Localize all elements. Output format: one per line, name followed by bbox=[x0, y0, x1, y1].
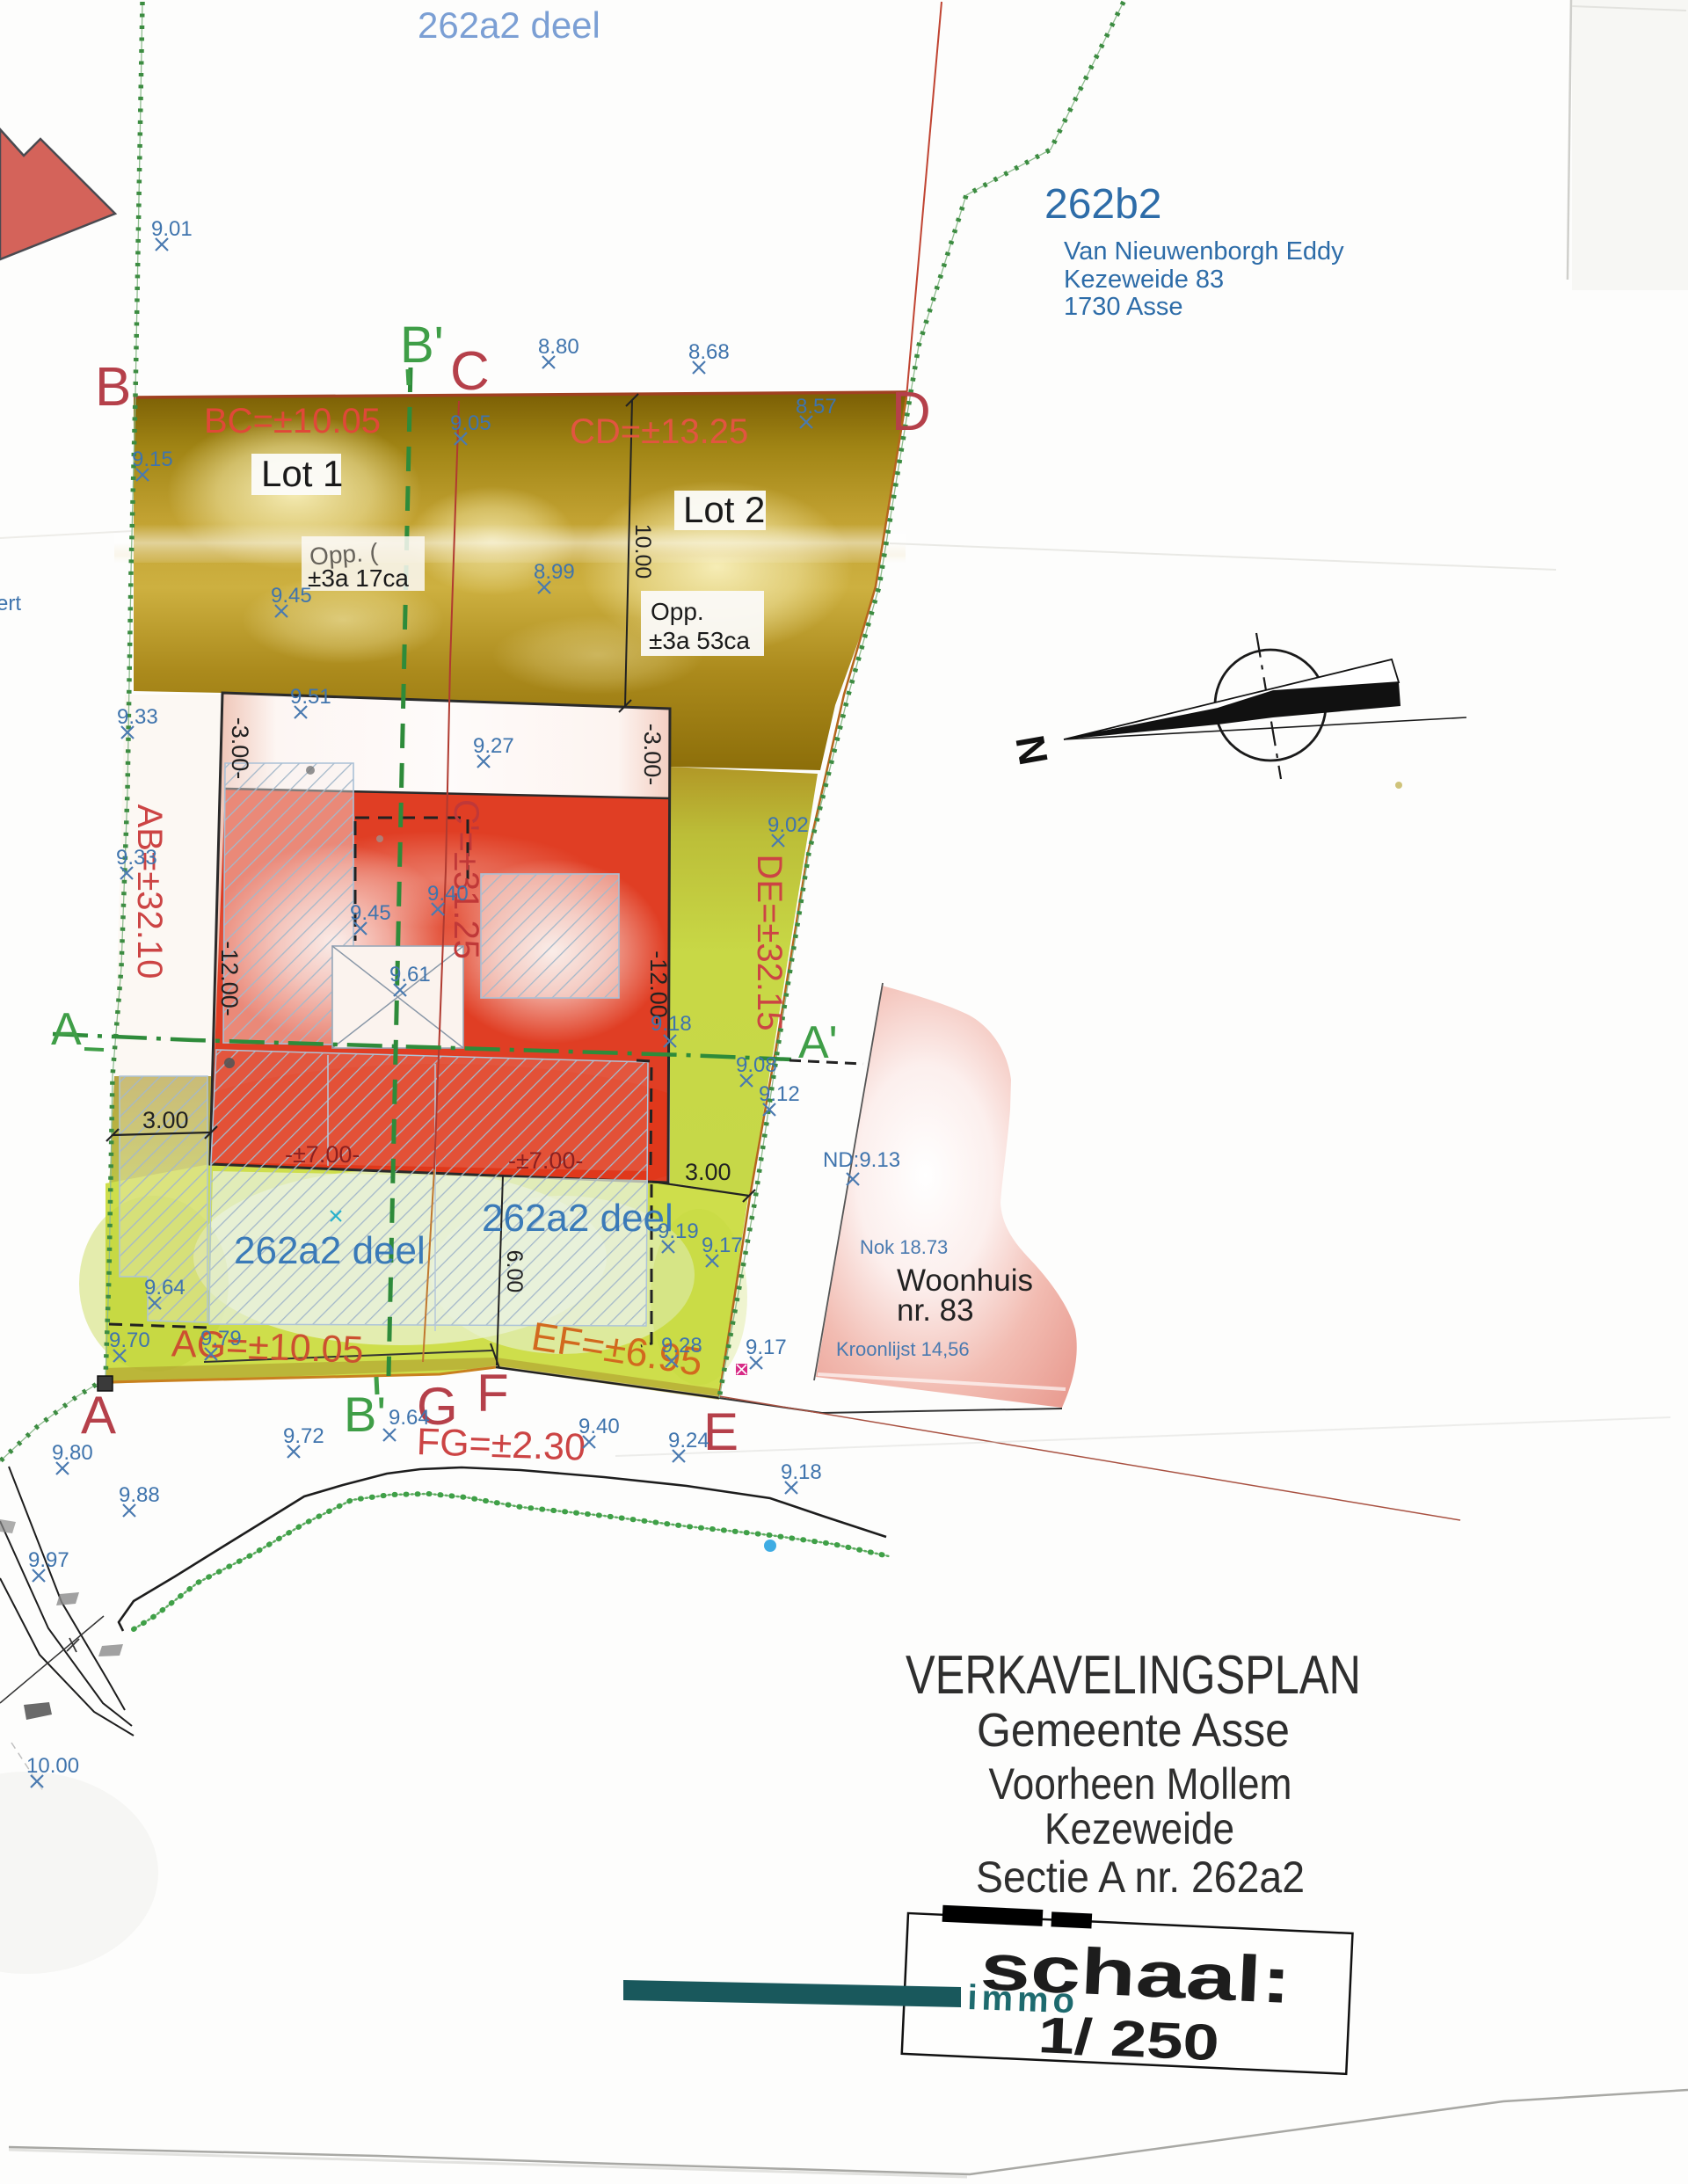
svg-text:ND:9.13: ND:9.13 bbox=[823, 1148, 900, 1172]
svg-text:B': B' bbox=[400, 317, 444, 374]
svg-text:9.12: 9.12 bbox=[759, 1082, 800, 1106]
svg-text:9.02: 9.02 bbox=[768, 813, 809, 837]
svg-text:C: C bbox=[450, 341, 490, 402]
svg-text:8.68: 8.68 bbox=[688, 340, 730, 364]
svg-text:9.79: 9.79 bbox=[200, 1327, 242, 1350]
svg-text:3.00: 3.00 bbox=[142, 1107, 189, 1133]
svg-text:9.05: 9.05 bbox=[450, 411, 491, 435]
svg-text:A: A bbox=[51, 1004, 82, 1055]
svg-text:9.51: 9.51 bbox=[290, 685, 331, 709]
svg-text:Kroonlijst 14,56: Kroonlijst 14,56 bbox=[836, 1338, 970, 1360]
svg-text:A': A' bbox=[798, 1017, 838, 1068]
svg-text:9.40: 9.40 bbox=[578, 1415, 620, 1438]
svg-text:3.00: 3.00 bbox=[685, 1159, 731, 1185]
svg-text:-12.00-: -12.00- bbox=[216, 941, 243, 1016]
svg-text:9.72: 9.72 bbox=[283, 1424, 324, 1448]
svg-text:9.15: 9.15 bbox=[132, 448, 173, 471]
svg-text:9.61: 9.61 bbox=[389, 963, 431, 986]
svg-text:CD=±13.25: CD=±13.25 bbox=[570, 412, 748, 451]
svg-text:9.18: 9.18 bbox=[781, 1460, 822, 1484]
svg-text:BC=±10.05: BC=±10.05 bbox=[204, 402, 381, 440]
svg-text:Voorheen Mollem: Voorheen Mollem bbox=[989, 1759, 1292, 1809]
svg-text:262a2 deel: 262a2 deel bbox=[482, 1197, 673, 1240]
svg-text:9.97: 9.97 bbox=[28, 1548, 69, 1572]
svg-text:9.08: 9.08 bbox=[736, 1053, 777, 1077]
svg-text:Van Nieuwenborgh Eddy: Van Nieuwenborgh Eddy bbox=[1064, 237, 1344, 266]
svg-text:immo: immo bbox=[967, 1978, 1080, 2020]
svg-text:8.99: 8.99 bbox=[534, 560, 575, 584]
svg-text:AB=±32.10: AB=±32.10 bbox=[130, 804, 169, 979]
svg-text:9.40: 9.40 bbox=[427, 882, 469, 906]
svg-text:ert: ert bbox=[0, 592, 21, 615]
svg-text:8.57: 8.57 bbox=[796, 395, 837, 419]
svg-text:9.17: 9.17 bbox=[702, 1234, 743, 1257]
svg-text:-±7.00-: -±7.00- bbox=[285, 1141, 360, 1168]
svg-text:9.70: 9.70 bbox=[109, 1329, 150, 1352]
svg-text:9.33: 9.33 bbox=[117, 705, 158, 729]
svg-text:262a2 deel: 262a2 deel bbox=[234, 1229, 426, 1272]
svg-text:-3.00-: -3.00- bbox=[639, 724, 666, 786]
svg-text:D: D bbox=[891, 382, 931, 442]
svg-text:9.88: 9.88 bbox=[119, 1483, 160, 1507]
svg-text:FG=±2.30: FG=±2.30 bbox=[416, 1421, 586, 1469]
svg-text:B: B bbox=[95, 357, 131, 418]
svg-text:9.01: 9.01 bbox=[151, 217, 193, 241]
svg-text:-±7.00-: -±7.00- bbox=[508, 1147, 583, 1174]
svg-text:9.33: 9.33 bbox=[116, 846, 157, 870]
svg-text:A: A bbox=[81, 1386, 116, 1445]
svg-text:DE=±32.15: DE=±32.15 bbox=[750, 855, 789, 1031]
svg-text:9.19: 9.19 bbox=[658, 1219, 699, 1243]
svg-text:Sectie A nr. 262a2: Sectie A nr. 262a2 bbox=[976, 1853, 1305, 1902]
svg-text:Gemeente Asse: Gemeente Asse bbox=[977, 1704, 1290, 1757]
svg-text:6.00: 6.00 bbox=[502, 1250, 527, 1293]
svg-text:8.80: 8.80 bbox=[538, 335, 579, 359]
svg-text:±3a 17ca: ±3a 17ca bbox=[308, 564, 409, 592]
svg-text:9.45: 9.45 bbox=[350, 901, 391, 925]
svg-text:Kezeweide 83: Kezeweide 83 bbox=[1064, 266, 1224, 294]
svg-text:Kezeweide: Kezeweide bbox=[1044, 1804, 1234, 1853]
svg-text:9.27: 9.27 bbox=[473, 734, 514, 758]
svg-text:262a2 deel: 262a2 deel bbox=[418, 4, 600, 46]
svg-text:nr. 83: nr. 83 bbox=[897, 1293, 974, 1328]
svg-text:Lot 1: Lot 1 bbox=[261, 453, 343, 494]
svg-text:10.00: 10.00 bbox=[26, 1754, 79, 1778]
svg-text:F: F bbox=[477, 1364, 509, 1423]
svg-text:Opp.: Opp. bbox=[651, 598, 704, 625]
svg-text:±3a 53ca: ±3a 53ca bbox=[649, 627, 750, 654]
svg-text:9.18: 9.18 bbox=[651, 1012, 692, 1036]
svg-text:VERKAVELINGSPLAN: VERKAVELINGSPLAN bbox=[906, 1645, 1361, 1706]
svg-text:B': B' bbox=[344, 1387, 386, 1442]
svg-text:9.24: 9.24 bbox=[668, 1429, 709, 1452]
svg-text:Lot 2: Lot 2 bbox=[683, 489, 765, 530]
svg-text:9.80: 9.80 bbox=[52, 1441, 93, 1465]
svg-text:1730 Asse: 1730 Asse bbox=[1064, 293, 1182, 321]
svg-text:9.28: 9.28 bbox=[661, 1334, 702, 1358]
svg-text:9.64: 9.64 bbox=[389, 1406, 430, 1430]
svg-text:9.45: 9.45 bbox=[271, 584, 312, 608]
svg-text:9.64: 9.64 bbox=[144, 1276, 186, 1299]
svg-text:C'=±31.25: C'=±31.25 bbox=[447, 799, 485, 959]
svg-text:-3.00-: -3.00- bbox=[227, 717, 253, 780]
svg-text:Nok 18.73: Nok 18.73 bbox=[860, 1236, 948, 1258]
svg-text:262b2: 262b2 bbox=[1044, 181, 1161, 228]
svg-text:10.00: 10.00 bbox=[630, 524, 655, 579]
svg-text:9.17: 9.17 bbox=[746, 1336, 787, 1359]
